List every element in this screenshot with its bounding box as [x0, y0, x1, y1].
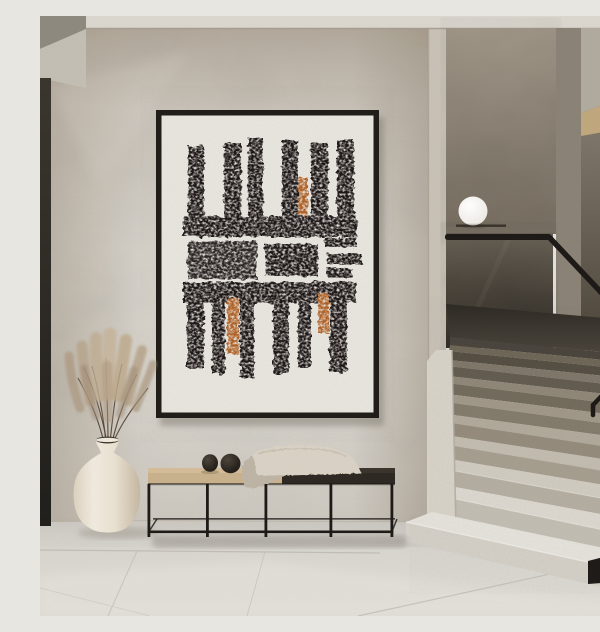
- photo-grain-overlay: [40, 16, 600, 616]
- hallway-photo: [40, 16, 600, 616]
